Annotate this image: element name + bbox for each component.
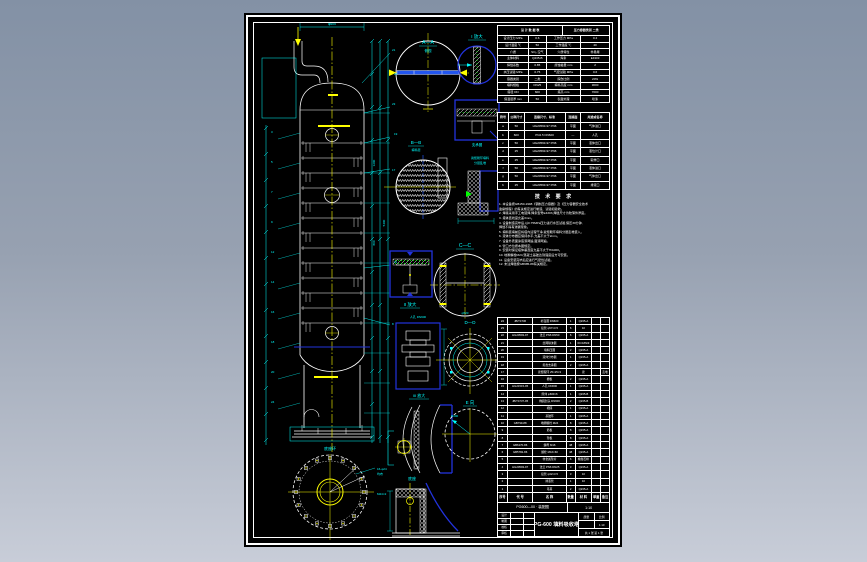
table-cell: 平面 <box>565 148 581 155</box>
table-row: 容器类别二类探伤比例20% <box>498 75 609 82</box>
table-cell: 液体进口 <box>580 165 609 172</box>
svg-text:R300: R300 <box>451 414 459 418</box>
table-row: 9筋板8Q235-A <box>498 426 609 433</box>
packing-support-detail: 瓷矩鞍环填料 分层乱堆 <box>458 155 498 224</box>
flow-arrow <box>295 39 301 46</box>
table-cell: 人孔 <box>580 131 609 138</box>
table-row: 4HG20593-97法兰 PN6 DN253Q235-A <box>498 463 609 470</box>
table-cell: 喷漆 <box>580 96 609 102</box>
column-centerlines <box>295 27 350 453</box>
title-block: PG600—00 · 装配图 1:10 设计制图校核审核 PG-600 填料吸收… <box>497 502 610 537</box>
table-row: g50HG20593-97 PN6平面气体出口 <box>498 172 609 180</box>
view-top-circle: A—A 俯视 <box>389 33 470 113</box>
svg-text:5400: 5400 <box>382 219 386 226</box>
svg-text:M24×2: M24×2 <box>377 492 387 496</box>
table-cell: 数量 <box>566 493 575 502</box>
table-row: h25HG20593-97 PN6平面排液口 <box>498 181 609 189</box>
svg-text:E 向: E 向 <box>466 399 475 405</box>
table-row: 塔径 DN600塔高 mm7000 <box>498 89 609 96</box>
table-cell: c <box>498 140 508 147</box>
tray-bar <box>397 71 459 75</box>
table-row: 序号代 号名 称数量材 料单重备注 <box>498 493 609 502</box>
callout-number: 14 <box>271 280 275 284</box>
table-cell: d <box>498 148 508 155</box>
table-cell: 保温层厚 mm <box>498 96 528 102</box>
table-cell: PN2.5 DN600 <box>524 131 565 138</box>
table-cell: 平面 <box>565 123 581 130</box>
design-data-table: 设 计 数 据 表压力容器类别 二类 设计压力 MPa0.6工作压力 MPa0.… <box>497 25 610 103</box>
table-cell: 平面 <box>565 140 581 147</box>
table-row: 15HG21515-95人孔 DN6001Q235-A <box>498 383 609 390</box>
view-label: A—A <box>422 40 434 46</box>
table-row: 11基础环1Q235-A <box>498 412 609 419</box>
svg-text:φ520: φ520 <box>462 311 469 315</box>
table-cell: 25 <box>508 182 524 189</box>
scale-value: 1:10 <box>594 521 610 528</box>
table-cell: 压力容器类别 二类 <box>562 26 609 35</box>
table-cell: 50 <box>508 173 524 180</box>
table-cell: 50 <box>508 123 524 130</box>
nozzle-table: 符号公称尺寸连接尺寸、标准连接面用途或名称 a50HG20593-97 PN6平… <box>497 112 610 190</box>
table-cell: 设 计 数 据 表 <box>498 26 562 35</box>
table-cell: 连接尺寸、标准 <box>524 113 565 122</box>
support-ring-detail: 支承圈 <box>455 100 499 147</box>
table-cell: 50 <box>508 165 524 172</box>
callout-number: 22 <box>394 72 398 76</box>
tech-notes-title: 技 术 要 求 <box>499 193 609 200</box>
table-row: 填料规格DN25填料高度 mm3000 <box>498 82 609 89</box>
callout-number: 23 <box>392 102 396 106</box>
table-cell: 50 <box>508 140 524 147</box>
table-row: 10GB799-88地脚螺栓 M248Q235-A <box>498 419 609 426</box>
table-row: 设计温度 ℃50工作温度 ℃40 <box>498 42 609 49</box>
right-panel: 设 计 数 据 表压力容器类别 二类 设计压力 MPa0.6工作压力 MPa0.… <box>497 23 612 537</box>
table-cell: 50 <box>528 96 546 102</box>
table-cell: 序号 <box>498 493 507 502</box>
table-row: 8垫板8Q235-A <box>498 434 609 441</box>
table-cell: 单重 <box>591 493 600 502</box>
view-cc: C—C φ520 <box>430 243 500 319</box>
svg-text:16-φ24: 16-φ24 <box>377 467 387 471</box>
platform-outline <box>262 58 296 118</box>
mass-label: 质量 <box>579 513 594 520</box>
view-packing-circle: B—B 填料层 <box>384 140 456 221</box>
callout-number: 5 <box>271 160 273 164</box>
table-row: 符号公称尺寸连接尺寸、标准连接面用途或名称 <box>498 113 609 122</box>
table-row: 21丝网除沫器10Cr18Ni9 <box>498 339 609 346</box>
table-cell: HG20593-97 PN6 <box>524 148 565 155</box>
callout-number: 9 <box>271 220 273 224</box>
table-cell: 取样口 <box>580 157 609 164</box>
table-row: 焊缝系数0.85腐蚀裕量 mm2 <box>498 62 609 69</box>
table-cell: 气体出口 <box>580 173 609 180</box>
technical-requirements: 技 术 要 求 1. 本设备按GB150-1998《钢制压力容器》及《压力容器安… <box>499 193 609 315</box>
table-cell: 代 号 <box>507 493 533 502</box>
table-cell: 平面 <box>565 173 581 180</box>
table-cell: 符号 <box>498 113 508 122</box>
dimensions <box>262 23 390 445</box>
table-row: f50HG20593-97 PN6平面液体进口 <box>498 164 609 172</box>
svg-text:人孔 DN600: 人孔 DN600 <box>410 314 427 319</box>
shell-segment-detail: III 放大 <box>388 392 452 473</box>
table-row: 介质SO₂·空气介质特性非易爆 <box>498 48 609 55</box>
flange-ring-view: D—D <box>436 320 504 394</box>
table-cell: g <box>498 173 508 180</box>
detail-i: I 放大 <box>458 33 496 84</box>
table-row: 设 计 数 据 表压力容器类别 二类 <box>498 26 609 35</box>
table-cell: f <box>498 165 508 172</box>
table-cell: — <box>565 131 581 138</box>
part-callouts: 35791214161820242122231917118 <box>271 48 398 404</box>
svg-text:底座环: 底座环 <box>324 445 336 451</box>
table-cell: 平面 <box>565 157 581 164</box>
table-cell: 平面 <box>565 182 581 189</box>
table-row: 审核 <box>498 530 534 536</box>
table-cell: b <box>498 131 508 138</box>
svg-text:俯视: 俯视 <box>425 48 433 53</box>
svg-text:均布: 均布 <box>377 471 383 476</box>
sheet-count: 共 1 张 第 1 张 <box>579 529 609 536</box>
table-cell <box>523 531 534 536</box>
svg-text:填料层: 填料层 <box>411 147 420 152</box>
skirt-access-hole <box>304 410 319 418</box>
table-cell: e <box>498 157 508 164</box>
table-cell: 600 <box>508 131 524 138</box>
table-cell: 表面处理 <box>546 96 580 102</box>
svg-text:分层乱堆: 分层乱堆 <box>474 160 486 165</box>
svg-text:支承圈: 支承圈 <box>472 142 483 147</box>
svg-text:D—D: D—D <box>465 320 477 325</box>
table-row: e25HG20593-97 PN6平面取样口 <box>498 156 609 164</box>
table-row: 6GB5782-86螺栓 M16×6048Q235-A <box>498 448 609 455</box>
table-row: d25HG20593-97 PN6平面液位计口 <box>498 147 609 155</box>
svg-text:I 放大: I 放大 <box>471 33 483 40</box>
bill-of-materials: 24JB/T4736补强圈 DN6001Q235-A23接管 φ57×3.561… <box>497 317 610 493</box>
svg-text:C—C: C—C <box>459 243 472 249</box>
table-row: 16栅板2Q235-A <box>498 375 609 382</box>
table-cell: 液体出口 <box>580 140 609 147</box>
table-row: 19液体分布器1Q235-A <box>498 353 609 360</box>
svg-text:φ600: φ600 <box>328 22 336 26</box>
table-row: 20填料压圈2Q235-A <box>498 346 609 353</box>
table-row: 14筒体 φ600×61Q235-B <box>498 390 609 397</box>
table-cell: 用途或名称 <box>580 113 609 122</box>
svg-text:800: 800 <box>372 240 376 245</box>
callout-number: 19 <box>394 132 398 136</box>
table-row: 5非金属垫片6橡胶石棉 <box>498 456 609 463</box>
info-grid: 质量 比例 1:10 共 1 张 第 1 张 <box>578 513 609 536</box>
table-cell: HG20593-97 PN6 <box>524 165 565 172</box>
table-row: 主体材料Q235-B焊条E4303 <box>498 55 609 62</box>
svg-text:底座: 底座 <box>408 475 416 481</box>
callout-number: 16 <box>271 310 275 314</box>
callout-number: 18 <box>271 340 275 344</box>
table-row: 3接管 φ32×3.5310 <box>498 470 609 477</box>
callout-number: 21 <box>392 48 396 52</box>
callout-number: 8 <box>392 322 394 326</box>
table-row: 23接管 φ57×3.5610 <box>498 324 609 331</box>
svg-text:B—B: B—B <box>411 140 422 145</box>
callout-number: 7 <box>271 190 273 194</box>
drawing-scale: 1:10 <box>567 503 609 512</box>
manhole-side-detail: 人孔 DN600 <box>396 314 447 389</box>
table-cell: 排液口 <box>580 182 609 189</box>
table-row: 18塔盘支承圈2Q235-A <box>498 361 609 368</box>
table-cell: h <box>498 182 508 189</box>
drawing-title: PG-600 填料吸收塔 <box>535 513 578 536</box>
svg-text:II 放大: II 放大 <box>404 301 417 308</box>
table-row: 水压试验 MPa0.75气密试验 MPa0.6 <box>498 69 609 76</box>
table-row: 2排液管110 <box>498 478 609 485</box>
callout-number: 12 <box>271 250 275 254</box>
table-cell: 公称尺寸 <box>508 113 524 122</box>
table-row: 22HG20593-97法兰 PN6 DN506Q235-A <box>498 332 609 339</box>
table-cell: 液位计口 <box>580 148 609 155</box>
svg-text:III 放大: III 放大 <box>413 392 425 398</box>
table-cell <box>510 531 523 536</box>
table-cell: HG20593-97 PN6 <box>524 173 565 180</box>
table-cell: 平面 <box>565 165 581 172</box>
table-row: 保温层厚 mm50表面处理喷漆 <box>498 95 609 102</box>
callout-number: 11 <box>394 260 397 264</box>
table-cell: 气体进口 <box>580 123 609 130</box>
view-e-circle: E 向 R300 <box>442 399 500 462</box>
skirt-base-detail: 底座 <box>387 475 460 536</box>
table-cell: HG20593-97 PN6 <box>524 182 565 189</box>
table-row: 13JB/T4737-95椭圆封头 DN6002Q235-B <box>498 397 609 404</box>
table-cell: 材 料 <box>575 493 592 502</box>
table-row: 7GB6170-86螺母 M1648Q235-A <box>498 441 609 448</box>
svg-text:1200: 1200 <box>372 159 376 166</box>
svg-text:瓷矩鞍环填料: 瓷矩鞍环填料 <box>471 155 489 160</box>
callout-number: 20 <box>271 370 275 374</box>
mass-value <box>579 521 594 528</box>
tech-notes-body: 1. 本设备按GB150-1998《钢制压力容器》及《压力容器安全技术 监察规程… <box>499 202 609 267</box>
callout-number: 24 <box>271 400 275 404</box>
callout-number: 3 <box>271 130 273 134</box>
signature-grid: 设计制图校核审核 <box>498 513 535 536</box>
callout-number: 17 <box>392 168 396 172</box>
table-cell: 25 <box>508 148 524 155</box>
drawing-paper: A—A 俯视 I 放大 支承圈 <box>244 13 622 547</box>
drawing-number: PG600—00 · 装配图 <box>498 503 567 512</box>
table-cell: a <box>498 123 508 130</box>
table-cell: HG20593-97 PN6 <box>524 157 565 164</box>
table-cell: 备注 <box>600 493 609 502</box>
table-row: 12裙座1Q235-A <box>498 405 609 412</box>
table-cell: 审核 <box>498 531 510 536</box>
cad-preview-screen: { "palette":{"background_top":"#8391a5",… <box>0 0 867 562</box>
table-row: 17瓷矩鞍环 25×25×3瓷乱堆 <box>498 368 609 375</box>
table-row: b600PN2.5 DN600—人孔 <box>498 130 609 138</box>
table-cell: 连接面 <box>565 113 581 122</box>
note-line: 12. 未注焊缝按GB985-88有关规定。 <box>499 262 609 267</box>
table-cell: 25 <box>508 157 524 164</box>
table-cell: 名 称 <box>532 493 565 502</box>
base-ring-view: 底座环 16-φ24 均布 M24×2 <box>288 445 387 540</box>
table-cell: HG20593-97 PN6 <box>524 123 565 130</box>
table-cell: HG20593-97 PN6 <box>524 140 565 147</box>
gooseneck-pipe <box>294 41 320 83</box>
table-row: a50HG20593-97 PN6平面气体进口 <box>498 123 609 130</box>
table-row: c50HG20593-97 PN6平面液体出口 <box>498 139 609 147</box>
scale-label: 比例 <box>594 513 610 520</box>
